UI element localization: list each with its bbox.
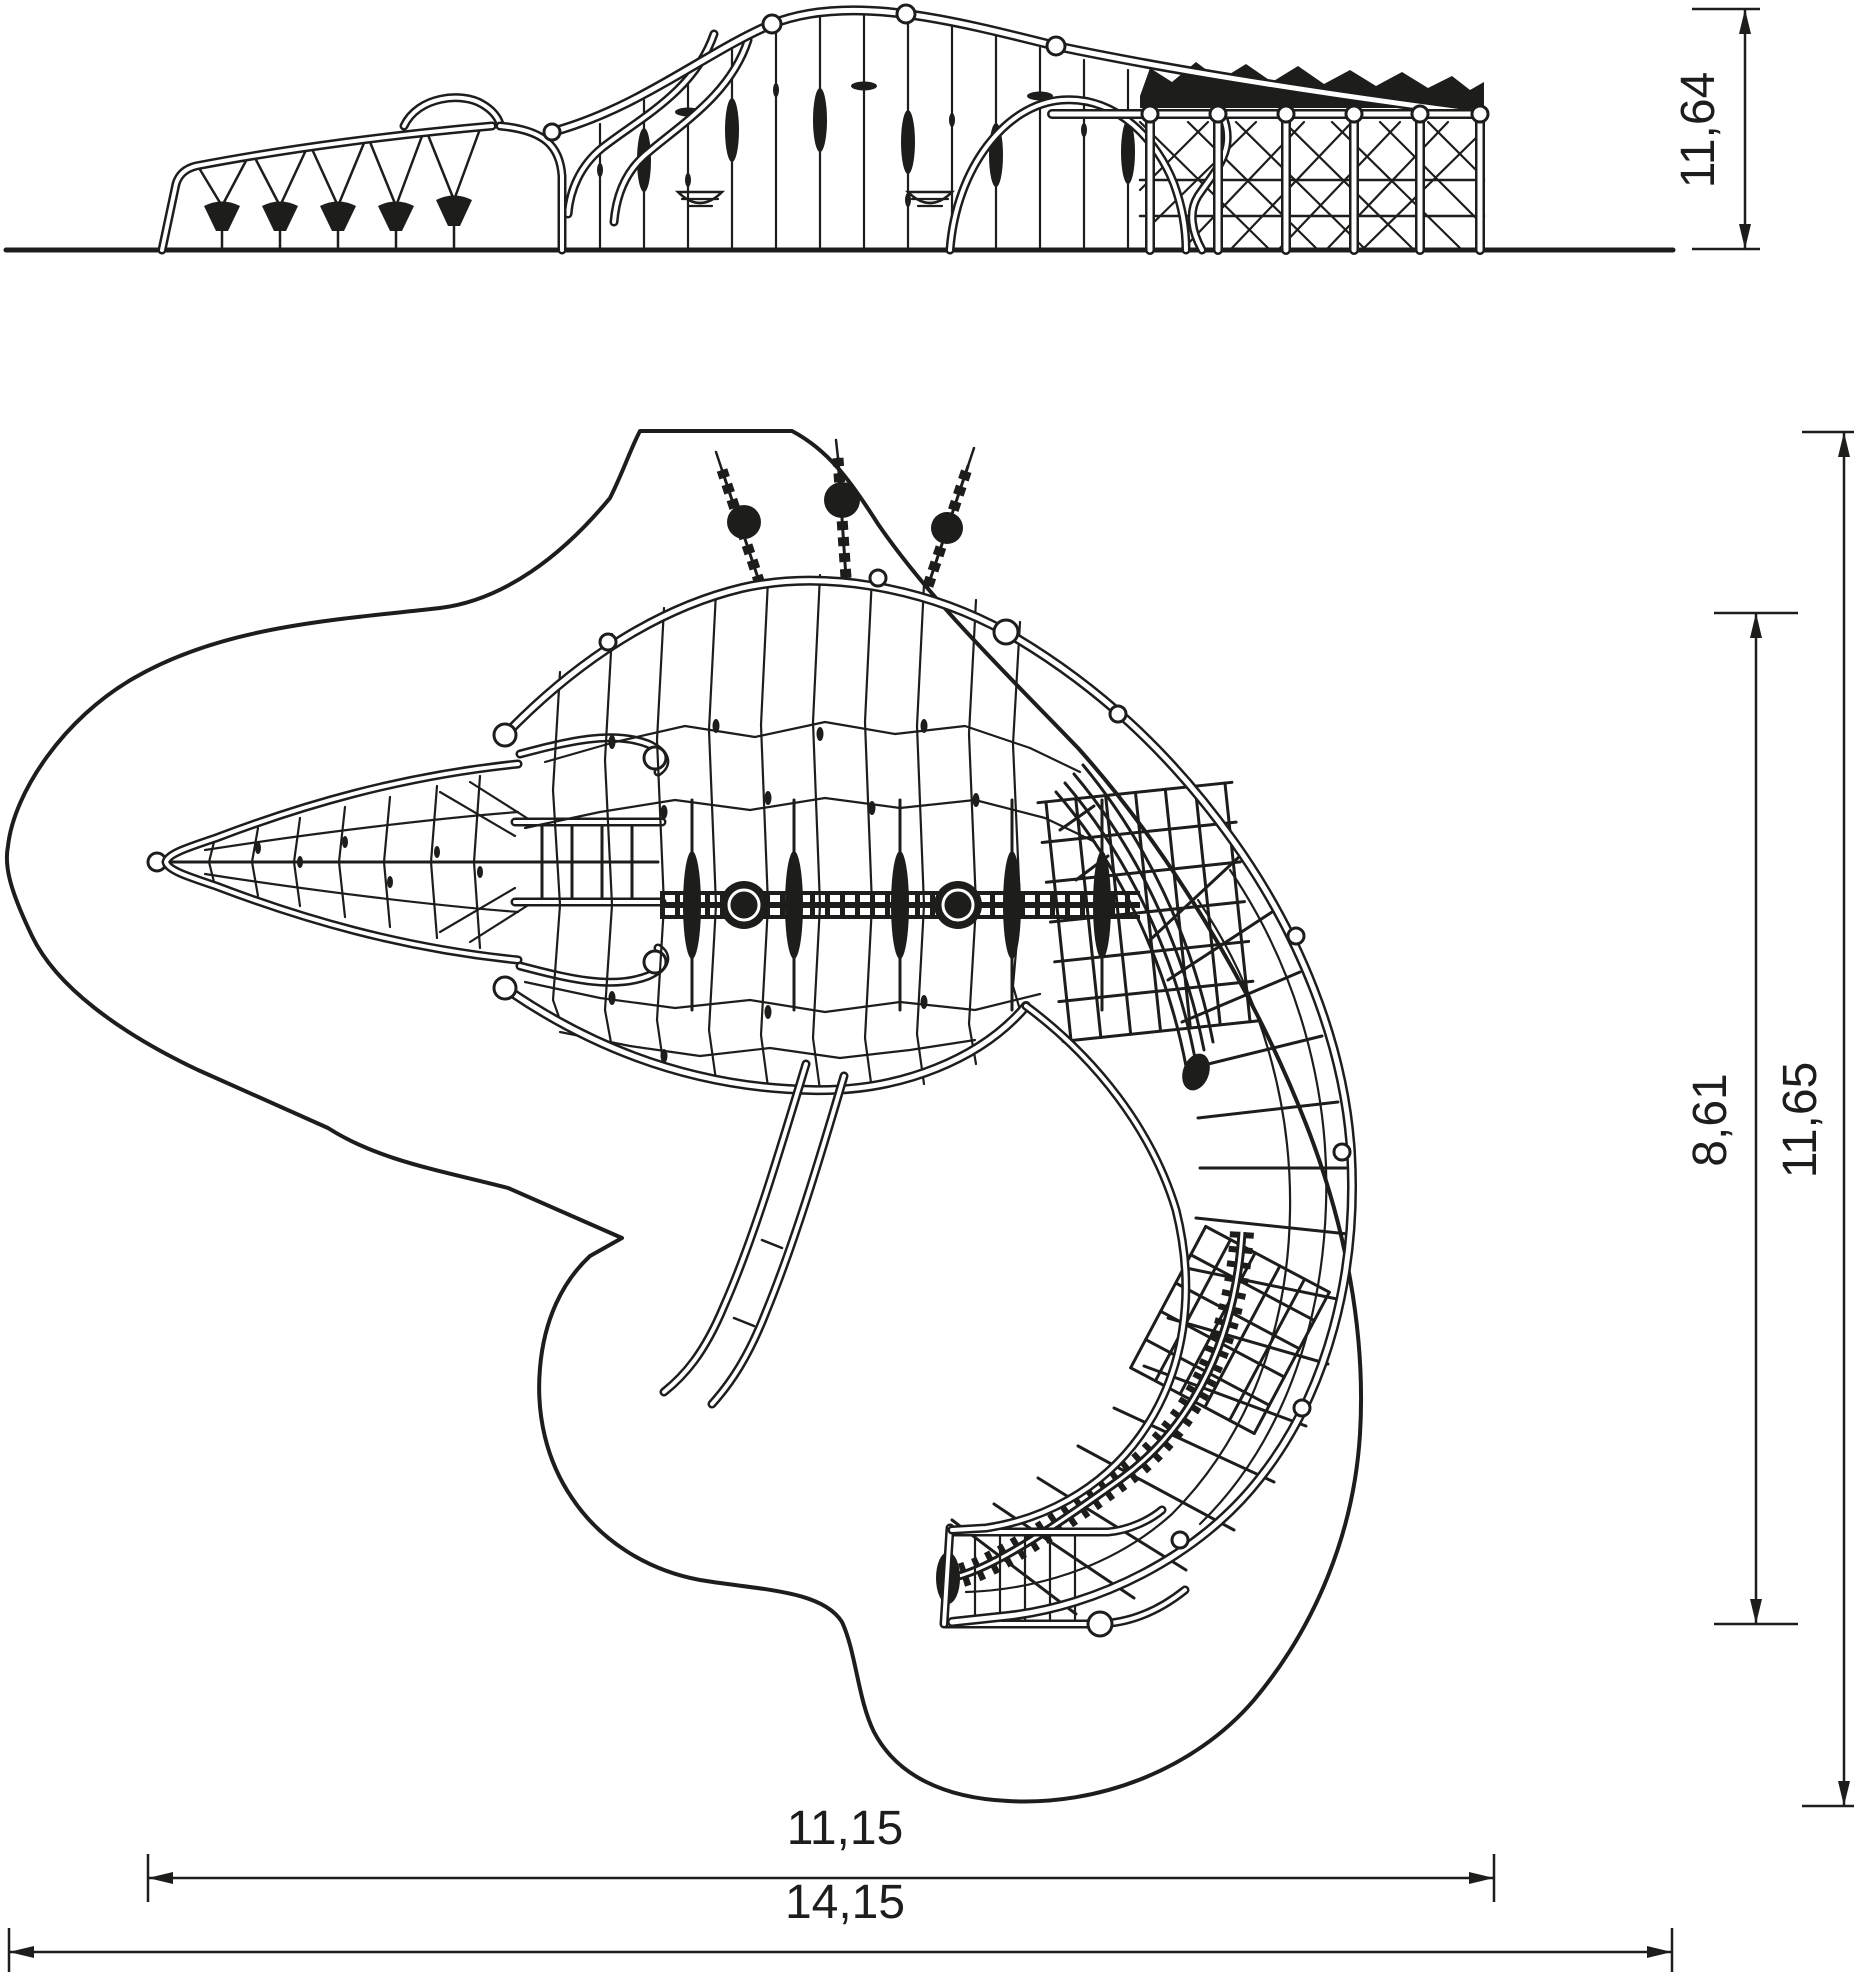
dim-label-total-depth: 11,65 (1774, 1062, 1827, 1179)
membrane-bowl (908, 192, 952, 206)
dim-label-total-width: 14,15 (785, 1876, 905, 1929)
snout-bridge (515, 738, 666, 983)
plan-view: 8,61 11,65 (7, 431, 1854, 1806)
dim-label-structure-width: 11,15 (787, 1802, 904, 1855)
dim-label-side-height: 11,64 (1672, 72, 1725, 189)
technical-drawing: 11,64 (0, 0, 1858, 1974)
dimension-plan-total-depth: 11,65 (1774, 432, 1854, 1806)
tail-rope-ladder (1056, 765, 1215, 1094)
safety-zone-outline (7, 431, 1361, 1801)
side-elevation-view: 11,64 (6, 5, 1760, 250)
dimension-side-total-width: 14,15 (9, 1876, 1672, 1972)
drawing-sheet: 11,64 (0, 0, 1858, 1974)
body-spine-climbers (660, 800, 1140, 1010)
dimension-side-height: 11,64 (1672, 9, 1760, 249)
dim-label-structure-depth: 8,61 (1684, 1073, 1737, 1166)
membrane-bowl (678, 192, 722, 206)
plan-slide-rails (664, 1064, 844, 1404)
snout-net (148, 764, 658, 960)
tail-chain-track (936, 1232, 1242, 1604)
head-beam-posts (1052, 106, 1488, 250)
overhead-rope-anchors (716, 440, 974, 586)
